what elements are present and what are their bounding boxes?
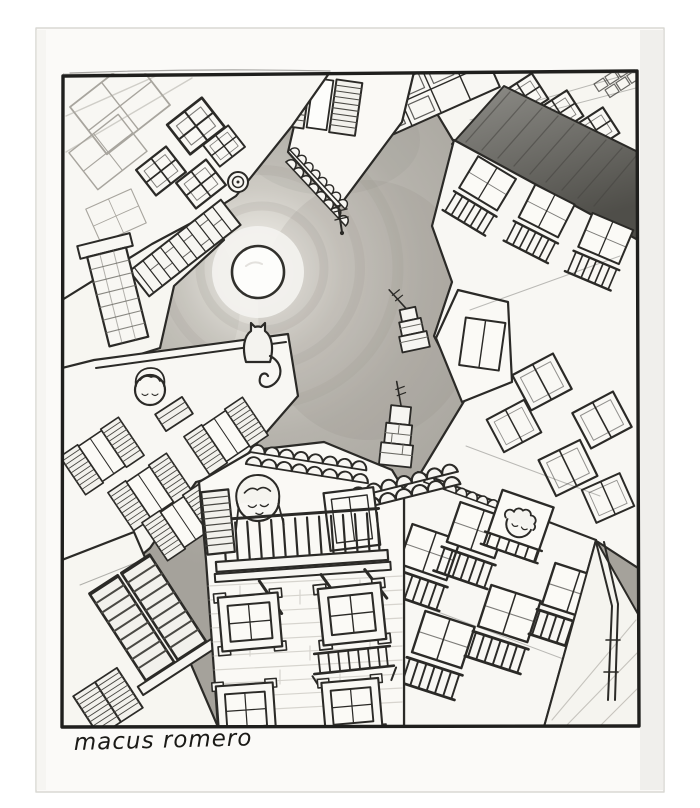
artist-signature: macus romero — [73, 725, 252, 756]
paper-edge-left — [36, 30, 46, 790]
paper-edge-shadow — [640, 30, 664, 790]
pencil-drawing-artwork: macus romero — [0, 0, 700, 808]
full-moon — [212, 226, 304, 318]
artwork-canvas: macus romero — [0, 0, 700, 808]
round-vent-ornament — [228, 172, 248, 192]
